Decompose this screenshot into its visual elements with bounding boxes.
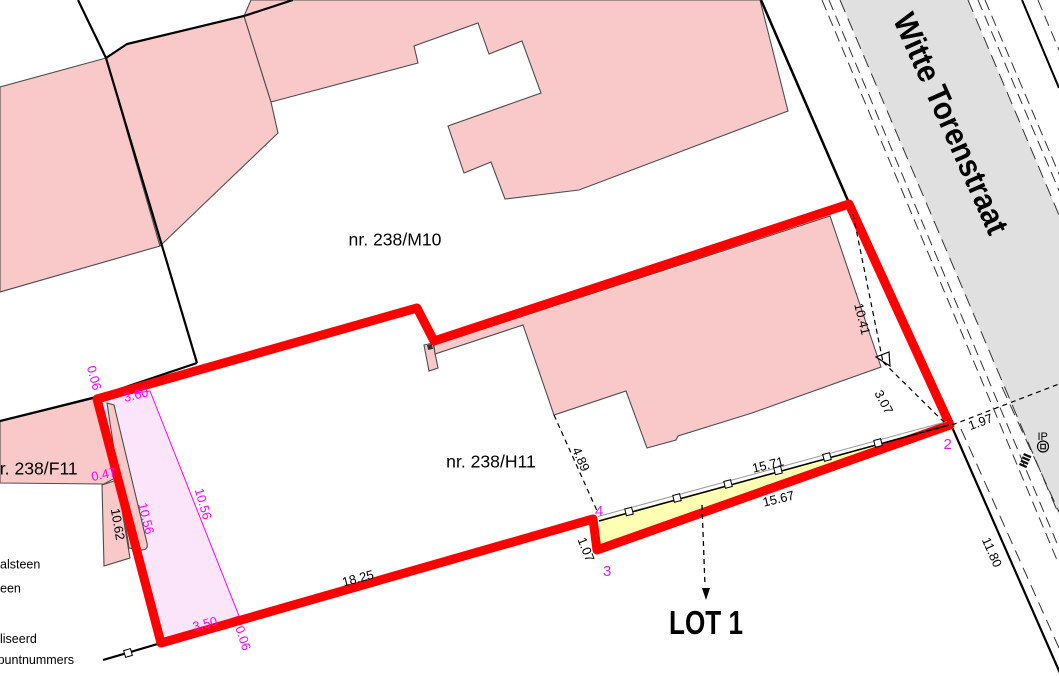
svg-text:liseerd: liseerd [0,632,37,646]
svg-text:alsteen: alsteen [0,558,40,572]
svg-text:4: 4 [595,503,603,520]
svg-text:2: 2 [944,436,952,453]
svg-text:een: een [0,582,21,596]
svg-text:puntnummers: puntnummers [0,653,74,667]
svg-text:nr. 238/F11: nr. 238/F11 [0,459,78,479]
svg-text:LOT 1: LOT 1 [669,604,743,641]
svg-text:3: 3 [603,563,611,580]
svg-text:nr. 238/M10: nr. 238/M10 [349,230,442,250]
svg-text:nr. 238/H11: nr. 238/H11 [446,452,536,472]
